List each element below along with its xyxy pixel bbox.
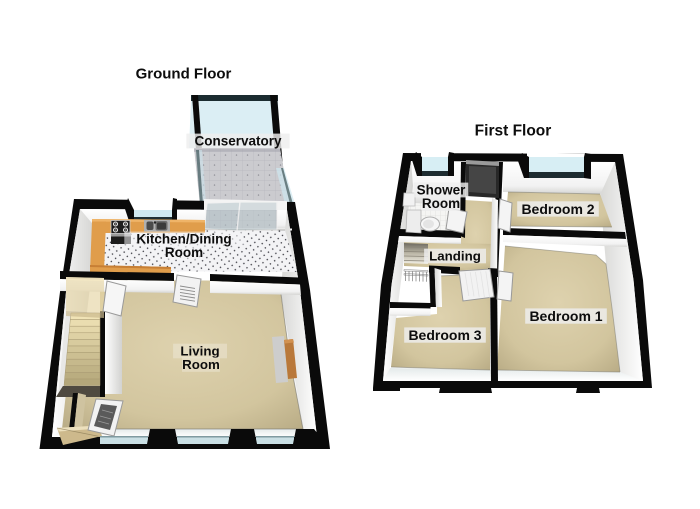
svg-text:Ground Floor: Ground Floor: [136, 66, 232, 83]
svg-text:Room: Room: [422, 196, 460, 211]
svg-text:Room: Room: [165, 245, 203, 260]
svg-text:Bedroom 3: Bedroom 3: [408, 327, 481, 343]
svg-text:Landing: Landing: [429, 249, 481, 264]
svg-text:Bedroom 2: Bedroom 2: [521, 201, 594, 217]
svg-text:Conservatory: Conservatory: [194, 134, 282, 149]
svg-text:Bedroom 1: Bedroom 1: [529, 308, 602, 324]
svg-text:Room: Room: [182, 357, 220, 372]
svg-text:First Floor: First Floor: [475, 123, 552, 140]
